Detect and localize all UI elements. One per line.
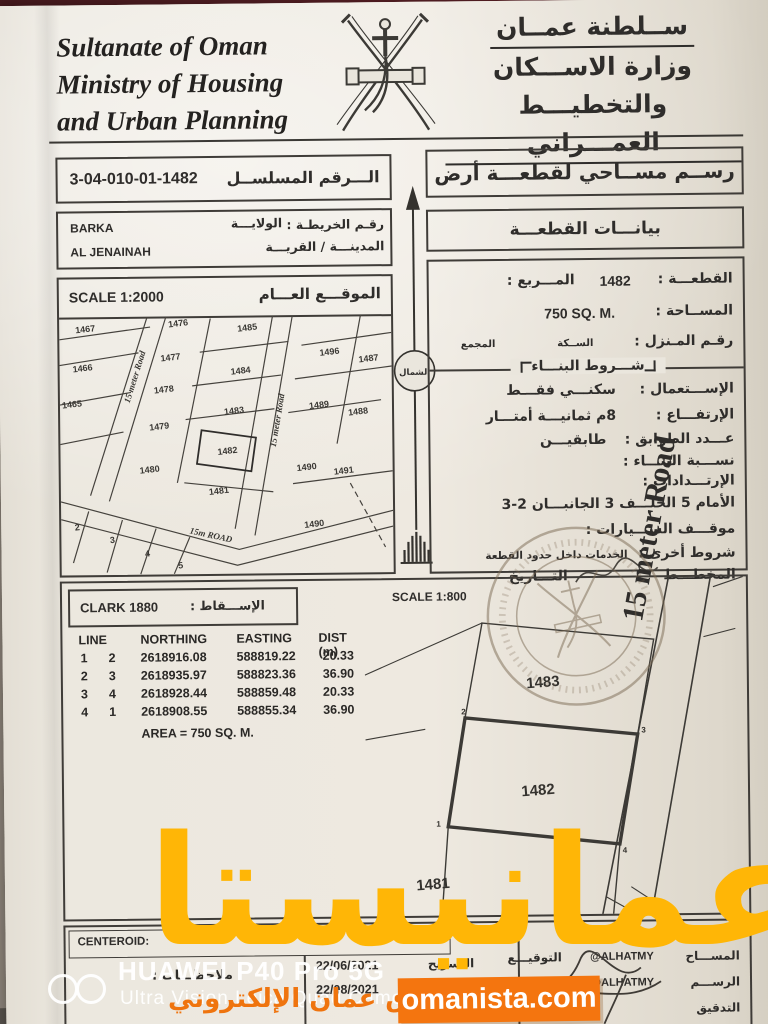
corner-number: 2 xyxy=(461,707,466,716)
coord-northing: 2618908.55 xyxy=(141,704,207,719)
area-total: AREA = 750 SQ. M. xyxy=(141,726,254,741)
wilaya-value: BARKA xyxy=(70,221,113,235)
map-number-label: رقـم الخريطـة : xyxy=(286,216,384,232)
location-box: رقـم الخريطـة : الولايـــة المدينـــة / … xyxy=(56,208,393,270)
height-label: الإرتفـــاع : xyxy=(656,407,734,424)
ministry-title-en-line1: Sultanate of Oman xyxy=(56,27,326,67)
projection-box: CLARK 1880 الإســـقاط : xyxy=(68,587,298,627)
coord-from: 4 xyxy=(81,705,88,719)
house-number-label: رقـم المـنزل : xyxy=(634,333,733,350)
town-label: المدينـــة / القريـــة xyxy=(265,238,384,254)
plot-number: 3 xyxy=(109,535,115,546)
coord-from: 3 xyxy=(81,687,88,701)
camera-logo-ring-icon xyxy=(76,974,106,1004)
ministry-title-en: Sultanate of Oman Ministry of Housing an… xyxy=(56,27,327,141)
coord-northing: 2618928.44 xyxy=(141,686,207,701)
height-value: 8م ثمانيـــة أمتـــار xyxy=(486,408,617,425)
coord-easting: 588855.34 xyxy=(237,703,296,718)
coord-northing: 2618916.08 xyxy=(141,650,207,665)
coordinates-table: LINE NORTHING EASTING DIST (m) 1 2 26189… xyxy=(78,630,368,633)
north-label: الشمال xyxy=(399,368,430,378)
document-title-box: رســم مســاحي لقطعـــة أرض xyxy=(425,146,743,197)
corner-number: 3 xyxy=(641,725,646,734)
serial-number-box: الـــرقم المسلســل 3-04-010-01-1482 xyxy=(55,154,391,204)
plot-number: 2 xyxy=(74,522,80,533)
area-value: 750 SQ. M. xyxy=(544,305,615,322)
plot-data-title: بيانـــات القطعـــة xyxy=(428,208,742,249)
overview-scale: SCALE 1:2000 xyxy=(69,288,164,305)
coord-dist: 36.90 xyxy=(323,702,354,716)
ministry-title-ar: ســلطنة عمــان وزارة الاســـكان والتخطيـ… xyxy=(444,6,742,165)
overview-map-area: 1467 1476 1485 1466 1477 1484 1496 1487 … xyxy=(59,314,394,575)
town-value: AL JENAINAH xyxy=(70,245,151,260)
ministry-title-en-line3: and Urban Planning xyxy=(57,101,327,141)
camera-watermark-model: HUAWEI P40 Pro 5G xyxy=(118,956,385,987)
overview-map-header: SCALE 1:2000 الموقـــع العـــام xyxy=(59,276,391,319)
coord-easting: 588823.36 xyxy=(237,667,296,682)
plot-data-title-box: بيانـــات القطعـــة xyxy=(426,206,744,251)
coord-from: 2 xyxy=(81,669,88,683)
conditions-title-wrap: شـــروط البنـــاء xyxy=(510,357,665,375)
detail-plot-number-main: 1482 xyxy=(521,781,556,801)
overview-title: الموقـــع العـــام xyxy=(259,284,381,303)
watermark-omanista-arabic: عمانيستا xyxy=(148,812,768,972)
use-label: الإســـتعمال : xyxy=(640,381,734,398)
wilaya-label: الولايـــة xyxy=(231,215,282,231)
serial-value: 3-04-010-01-1482 xyxy=(70,170,198,189)
complex-label: المجمع xyxy=(461,339,496,350)
street-label: الســكة xyxy=(557,338,593,349)
coord-to: 3 xyxy=(109,669,116,683)
col-header-easting: EASTING xyxy=(236,631,292,646)
square-label: المـــربع : xyxy=(507,272,575,289)
use-value: سكنـــي فقـــط xyxy=(506,382,616,399)
coord-to: 4 xyxy=(109,687,116,701)
document-title: رســم مســاحي لقطعـــة أرض xyxy=(427,148,741,195)
official-stamp xyxy=(462,502,691,731)
floors-value: طابقيـــن xyxy=(540,432,607,449)
coord-to: 1 xyxy=(109,705,116,719)
plot-number: 4 xyxy=(144,548,150,559)
camera-logo-ring-icon xyxy=(48,974,78,1004)
plot-number: 5 xyxy=(178,560,184,571)
overview-map-box: SCALE 1:2000 الموقـــع العـــام xyxy=(57,274,396,578)
area-label: المســاحة : xyxy=(655,303,733,320)
col-header-northing: NORTHING xyxy=(140,632,207,647)
coord-northing: 2618935.97 xyxy=(141,668,207,683)
coord-from: 1 xyxy=(81,651,88,665)
ministry-title-ar-line2: وزارة الاســـكان xyxy=(444,46,740,87)
coord-easting: 588859.48 xyxy=(237,685,296,700)
coord-dist: 20.33 xyxy=(323,684,354,698)
ministry-title-ar-line1: ســلطنة عمــان xyxy=(490,7,694,49)
conditions-title: شـــروط البنـــاء xyxy=(531,357,644,374)
ministry-title-en-line2: Ministry of Housing xyxy=(56,64,326,104)
photographed-document: Sultanate of Oman Ministry of Housing an… xyxy=(0,0,768,1024)
projection-en: CLARK 1880 xyxy=(80,600,158,616)
col-header-line: LINE xyxy=(78,633,107,647)
centeroid-label: CENTEROID: xyxy=(78,936,150,949)
omanista-badge: omanista.com xyxy=(398,976,601,1024)
plot-label: القطعـــة : xyxy=(658,271,733,288)
coord-dist: 20.33 xyxy=(323,648,354,662)
serial-label: الـــرقم المسلســل xyxy=(227,167,380,188)
coord-easting: 588819.22 xyxy=(237,649,296,664)
coord-to: 2 xyxy=(109,651,116,665)
oman-emblem-icon xyxy=(324,7,447,134)
plot-value: 1482 xyxy=(599,273,630,289)
coord-dist: 36.90 xyxy=(323,666,354,680)
projection-ar: الإســـقاط : xyxy=(190,597,265,613)
